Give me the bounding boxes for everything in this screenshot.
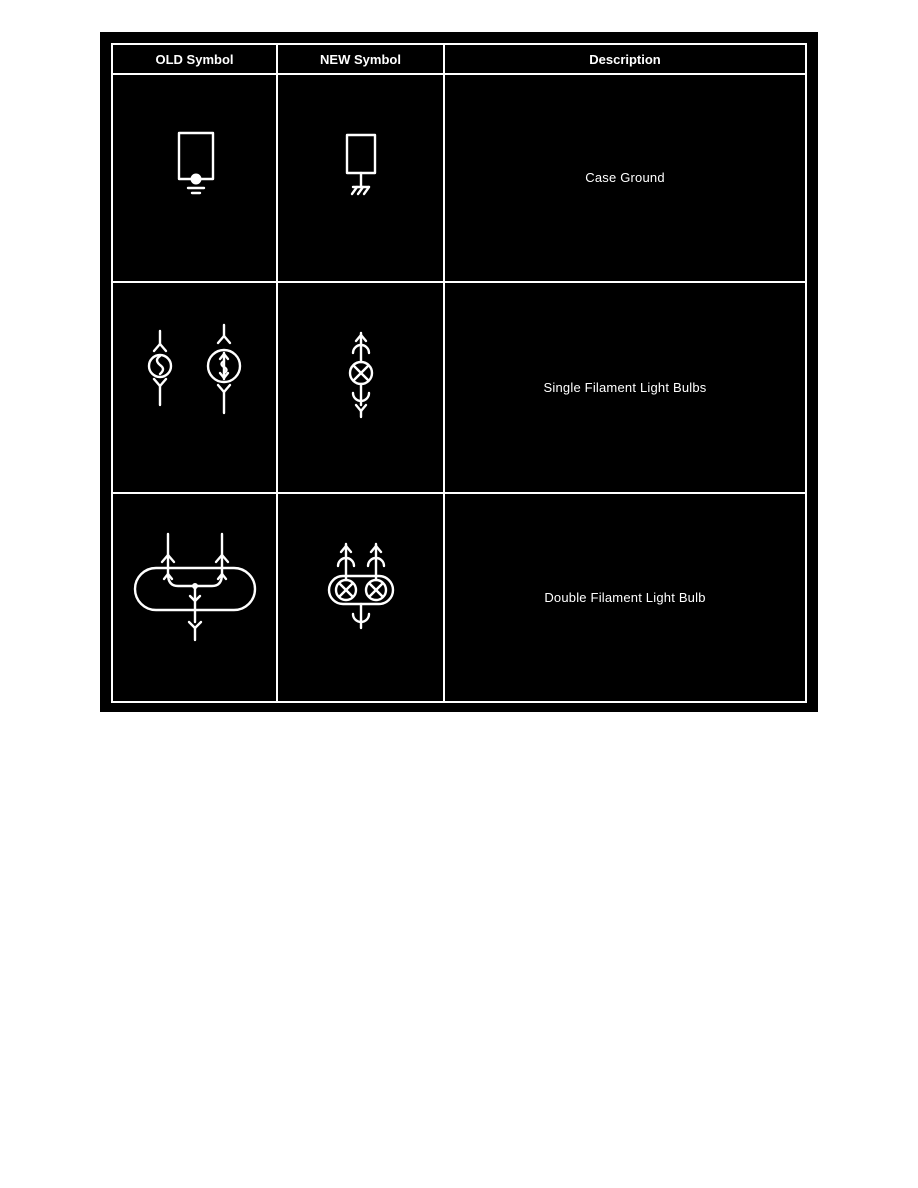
new-symbol-wrap <box>278 129 443 203</box>
header-old-symbol: OLD Symbol <box>112 44 277 74</box>
double-filament-bulb-new-icon <box>313 540 409 632</box>
double-filament-bulb-old-icon <box>120 530 270 642</box>
symbol-comparison-table: OLD Symbol NEW Symbol Description <box>111 43 807 703</box>
old-symbol-wrap <box>113 530 276 642</box>
old-symbol-wrap <box>113 323 276 427</box>
new-symbol-cell <box>277 493 444 702</box>
single-filament-bulb-new-icon <box>336 331 386 419</box>
old-symbol-cell <box>112 282 277 494</box>
description-cell: Double Filament Light Bulb <box>444 493 806 702</box>
single-filament-bulb-old-small-icon <box>139 329 181 421</box>
old-symbol-cell <box>112 74 277 282</box>
description-cell: Case Ground <box>444 74 806 282</box>
header-new-symbol: NEW Symbol <box>277 44 444 74</box>
description-cell: Single Filament Light Bulbs <box>444 282 806 494</box>
header-row: OLD Symbol NEW Symbol Description <box>112 44 806 74</box>
new-symbol-wrap <box>278 540 443 632</box>
new-symbol-cell <box>277 282 444 494</box>
symbol-legend-figure: OLD Symbol NEW Symbol Description <box>100 32 818 712</box>
new-symbol-cell <box>277 74 444 282</box>
table-row-case-ground: Case Ground <box>112 74 806 282</box>
single-filament-bulb-old-large-icon <box>197 323 251 427</box>
old-symbol-cell <box>112 493 277 702</box>
old-symbol-wrap <box>113 127 276 205</box>
case-ground-new-icon <box>335 129 387 203</box>
new-symbol-wrap <box>278 331 443 419</box>
table-row-double-filament: Double Filament Light Bulb <box>112 493 806 702</box>
header-description: Description <box>444 44 806 74</box>
table-row-single-filament: Single Filament Light Bulbs <box>112 282 806 494</box>
case-ground-old-icon <box>163 127 227 205</box>
document-page: OLD Symbol NEW Symbol Description <box>0 0 918 1188</box>
